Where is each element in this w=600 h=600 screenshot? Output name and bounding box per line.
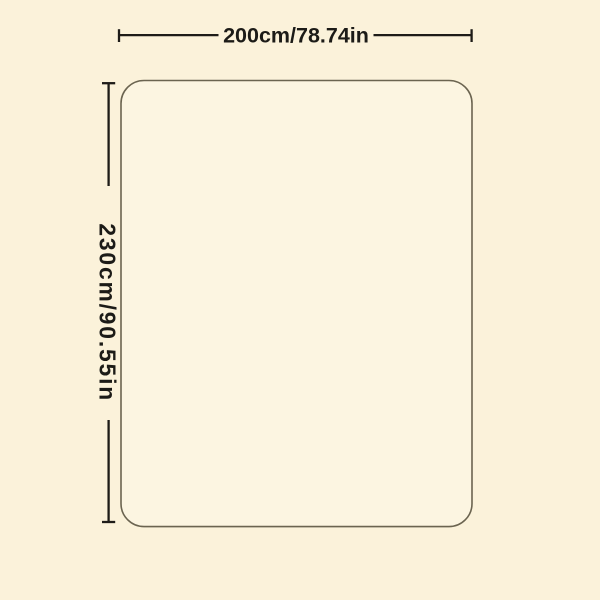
svg-text:200cm/78.74in: 200cm/78.74in: [223, 24, 369, 48]
svg-text:230cm/90.55in: 230cm/90.55in: [94, 223, 120, 402]
